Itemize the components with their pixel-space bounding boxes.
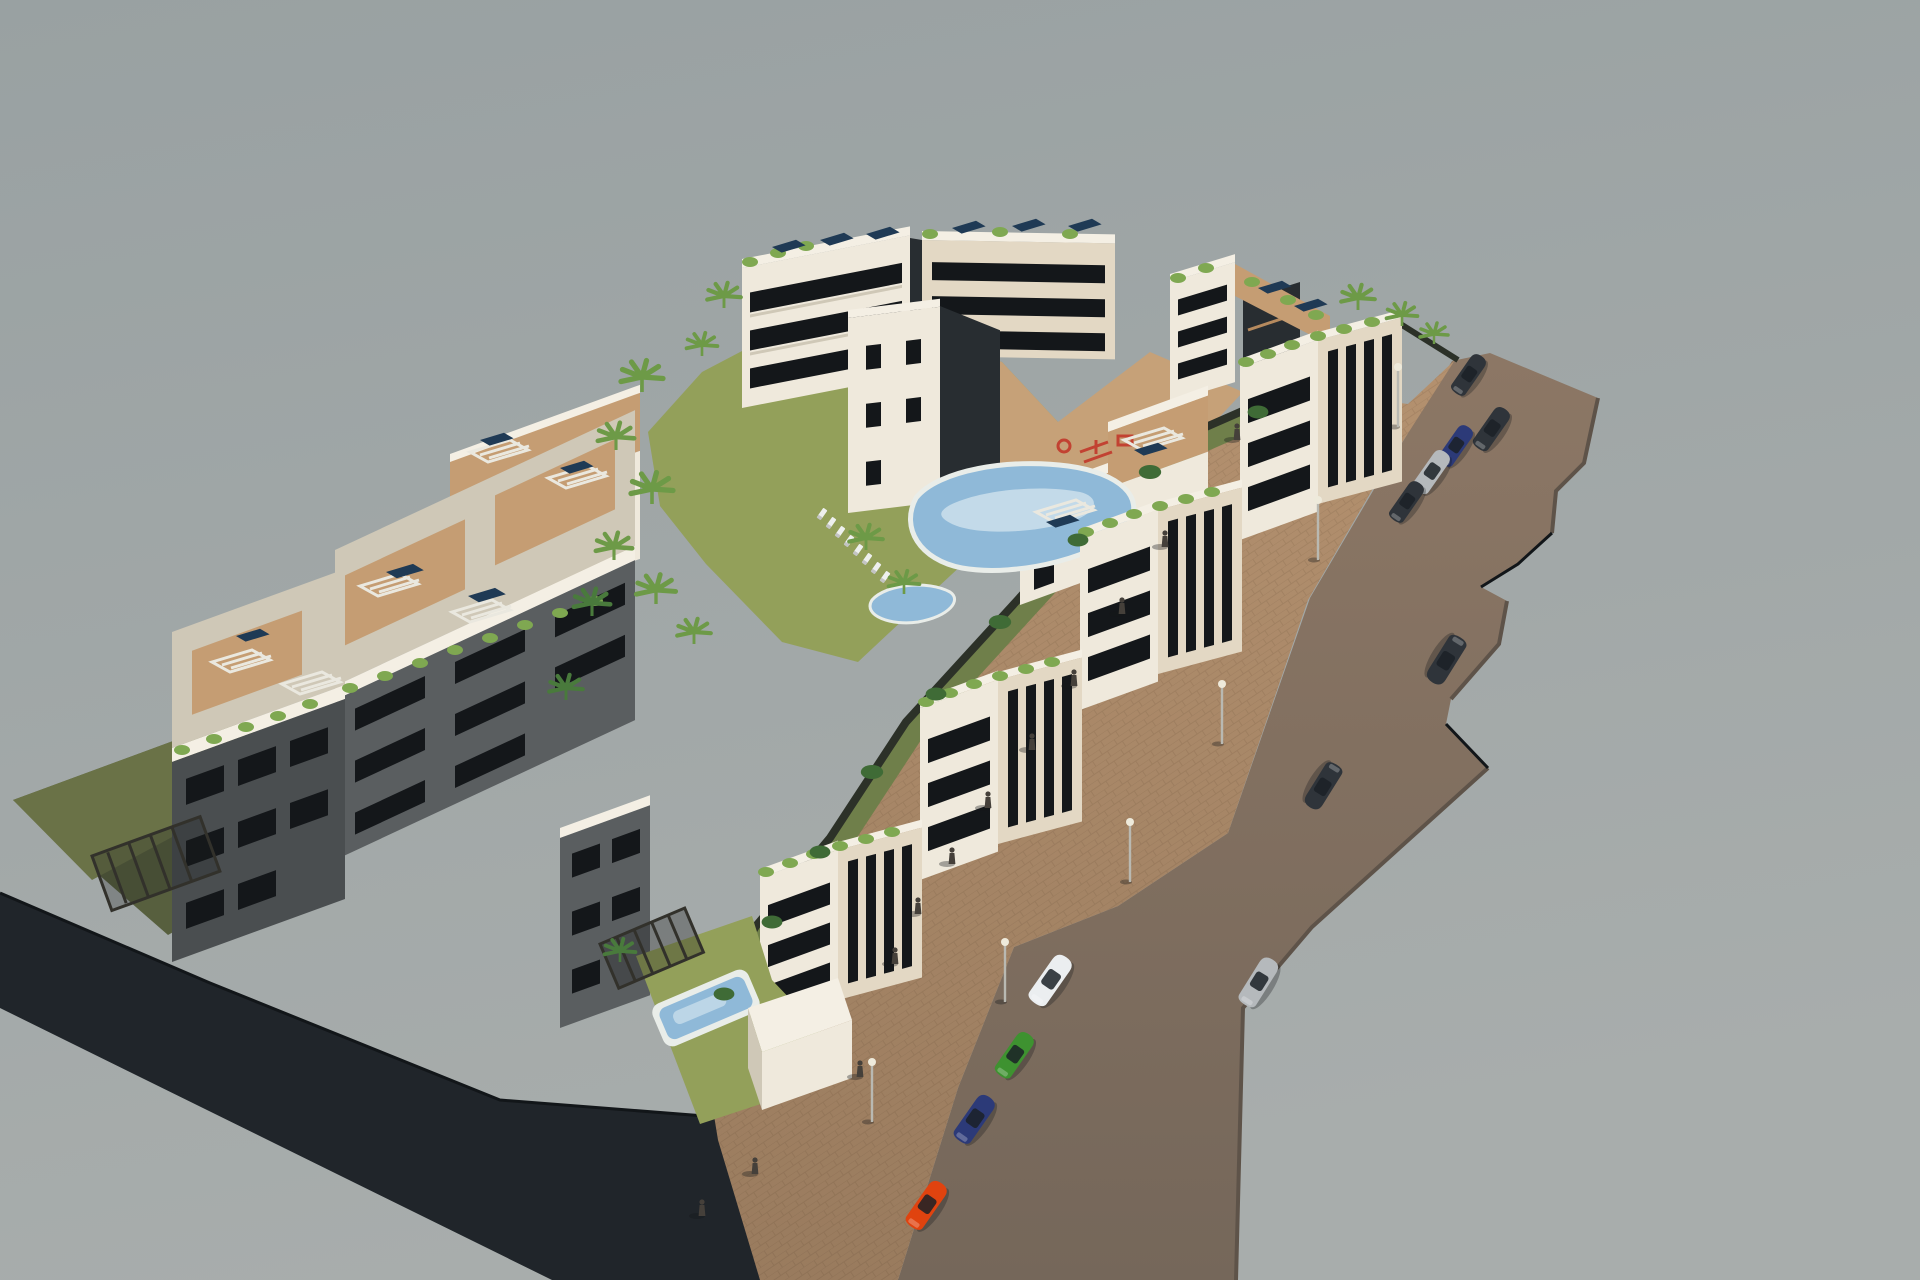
shrub [412, 658, 428, 668]
lamp-head [1314, 496, 1322, 504]
tree [762, 916, 783, 929]
tree [1139, 465, 1161, 479]
render-stage [0, 0, 1920, 1280]
apartment-complex-aerial-render [0, 0, 1920, 1280]
tree [861, 765, 883, 779]
shrub [1364, 317, 1380, 327]
window-slit [1026, 684, 1036, 823]
lamp-pole [1129, 824, 1131, 882]
lamp-head [868, 1058, 876, 1066]
window-slit [1062, 674, 1072, 813]
shrub [858, 834, 874, 844]
shrub [174, 745, 190, 755]
window-slit [1186, 514, 1196, 653]
shrub [1170, 273, 1186, 283]
shrub [1280, 295, 1296, 305]
lamp-head [1001, 938, 1009, 946]
lamp-head [1394, 363, 1402, 371]
window-slit [1008, 689, 1018, 828]
shrub [922, 229, 938, 239]
shrub [1062, 229, 1078, 239]
shrub [302, 699, 318, 709]
window-band [932, 262, 1105, 283]
lamp-pole [871, 1064, 873, 1122]
shrub [992, 227, 1008, 237]
shrub [1244, 277, 1260, 287]
shrub [884, 827, 900, 837]
shrub [1308, 310, 1324, 320]
shrub [342, 683, 358, 693]
shrub [1198, 263, 1214, 273]
shrub [552, 608, 568, 618]
shrub [238, 722, 254, 732]
shrub [1310, 331, 1326, 341]
shrub [832, 841, 848, 851]
window-slit [1364, 339, 1374, 478]
shrub [758, 867, 774, 877]
lamp-pole [1221, 686, 1223, 744]
shrub [1126, 509, 1142, 519]
shrub [1284, 340, 1300, 350]
tree [926, 688, 947, 701]
window-slit [1382, 334, 1392, 473]
window-slit [866, 854, 876, 979]
tree [714, 988, 735, 1001]
shrub [742, 257, 758, 267]
shrub [1238, 357, 1254, 367]
shrub [782, 858, 798, 868]
lamp-pole [1397, 369, 1399, 427]
window-slit [848, 859, 858, 984]
window-slit [1346, 344, 1356, 483]
shrub [966, 679, 982, 689]
window-slit [1328, 349, 1338, 488]
window [866, 402, 881, 428]
shrub [1044, 657, 1060, 667]
window-slit [1204, 509, 1214, 648]
tree [1248, 406, 1269, 419]
tree [810, 846, 831, 859]
window [906, 397, 921, 423]
shrub [992, 671, 1008, 681]
left-building-front [172, 569, 345, 962]
shrub [447, 645, 463, 655]
shrub [1260, 349, 1276, 359]
shrub [1102, 518, 1118, 528]
shrub [1018, 664, 1034, 674]
shrub [377, 671, 393, 681]
shrub [517, 620, 533, 630]
shrub [270, 711, 286, 721]
window-slit [1168, 519, 1178, 658]
shrub [1152, 501, 1168, 511]
lamp-pole [1317, 502, 1319, 560]
facade [848, 307, 940, 513]
shrub [1178, 494, 1194, 504]
shrub [206, 734, 222, 744]
left-building-small [560, 795, 650, 1028]
window [866, 344, 881, 370]
shrub [1336, 324, 1352, 334]
lamp-pole [1004, 944, 1006, 1002]
window [866, 460, 881, 486]
tree [989, 615, 1011, 629]
window [906, 339, 921, 365]
shrub [1204, 487, 1220, 497]
window-slit [902, 844, 912, 969]
window-slit [1222, 504, 1232, 643]
lamp-head [1126, 818, 1134, 826]
tree [1068, 534, 1089, 547]
gable-building [848, 299, 940, 513]
shrub [482, 633, 498, 643]
lamp-head [1218, 680, 1226, 688]
window-slit [1044, 679, 1054, 818]
